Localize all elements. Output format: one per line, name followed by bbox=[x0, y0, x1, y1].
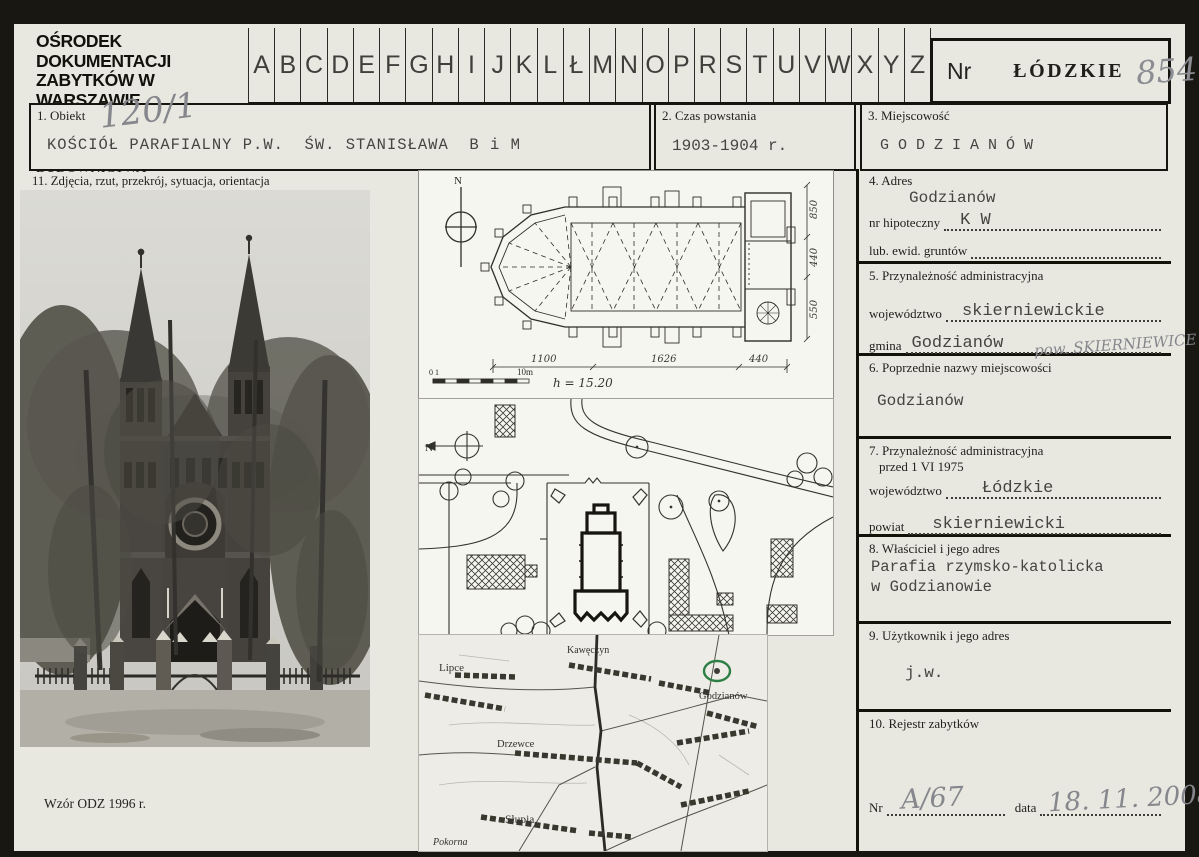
powiat-label: powiat bbox=[869, 519, 904, 535]
plot-corner-markers bbox=[550, 489, 647, 627]
field-former-names: 6. Poprzednie nazwy miejscowości Godzian… bbox=[859, 356, 1171, 439]
map-label-lipce: Lipce bbox=[439, 662, 464, 674]
gmina-label: gmina bbox=[869, 338, 902, 354]
alphabet-cell-n: N bbox=[616, 28, 642, 102]
gmina-value: Godzianów bbox=[912, 334, 1004, 353]
record-card: OŚRODEK DOKUMENTACJI ZABYTKÓW W WARSZAWI… bbox=[14, 24, 1185, 851]
alphabet-cell-m: M bbox=[590, 28, 616, 102]
field-owner: 8. Właściciel i jego adres Parafia rzyms… bbox=[859, 537, 1171, 624]
alphabet-cell-z: Z bbox=[905, 28, 931, 102]
dim-440r: 440 bbox=[809, 247, 820, 268]
tower-block bbox=[745, 193, 795, 341]
site-plan-art: N bbox=[419, 399, 833, 635]
dim-850: 850 bbox=[809, 199, 820, 219]
church-footprint bbox=[575, 505, 627, 620]
land-register-label: lub. ewid. gruntów bbox=[869, 243, 967, 259]
alphabet-cell-o: O bbox=[643, 28, 669, 102]
dim-1100: 1100 bbox=[531, 354, 557, 365]
alphabet-cell-y: Y bbox=[879, 28, 905, 102]
dim-440b: 440 bbox=[748, 354, 769, 365]
pre1975-voivodeship-label: województwo bbox=[869, 483, 942, 499]
alphabet-cell-c: C bbox=[301, 28, 327, 102]
alphabet-cell-j: J bbox=[485, 28, 511, 102]
alphabet-cell-w: W bbox=[826, 28, 852, 102]
field-date: 2. Czas powstania 1903-1904 r. bbox=[654, 103, 856, 171]
register-date-value: 18. 11. 2008 bbox=[1048, 780, 1199, 819]
site-plan-north-label: N bbox=[425, 442, 433, 454]
alphabet-cell-u: U bbox=[774, 28, 800, 102]
map-label-slupia: Słupia bbox=[505, 814, 534, 826]
field-address-value: Godzianów bbox=[909, 189, 1161, 207]
alphabet-cell-t: T bbox=[747, 28, 773, 102]
alphabet-cell-h: H bbox=[433, 28, 459, 102]
map-label-pokorna: Pokorna bbox=[432, 837, 467, 848]
form-version-note: Wzór ODZ 1996 r. bbox=[44, 796, 146, 812]
voivodeship-label: województwo bbox=[869, 306, 942, 322]
field-locality-label: 3. Miejscowość bbox=[868, 108, 950, 124]
church-photo-art bbox=[20, 190, 370, 747]
height-note: h = 15.20 bbox=[553, 376, 613, 390]
field-date-value: 1903-1904 r. bbox=[672, 137, 787, 155]
alphabet-cell-b: B bbox=[275, 28, 301, 102]
field-locality-value: G O D Z I A N Ó W bbox=[880, 137, 1033, 154]
mortgage-number-value: K W bbox=[960, 211, 991, 230]
scale-zero-label: 0 1 bbox=[429, 368, 439, 377]
alphabet-cell-f: F bbox=[380, 28, 406, 102]
field-user-label: 9. Użytkownik i jego adres bbox=[869, 628, 1161, 644]
card-number-handwritten: 854 bbox=[1135, 50, 1199, 92]
field-owner-value2: w Godzianowie bbox=[871, 578, 1161, 596]
floor-plan-art: N 1100 1626 440 850 440 550 0 1 10m h = … bbox=[419, 171, 833, 399]
field-former-names-label: 6. Poprzednie nazwy miejscowości bbox=[869, 360, 1161, 376]
field-admin-pre1975-label1: 7. Przynależność administracyjna bbox=[869, 443, 1161, 459]
buttresses bbox=[481, 187, 741, 347]
alphabet-cell-x: X bbox=[852, 28, 878, 102]
site-plan: N bbox=[418, 398, 834, 636]
dim-550: 550 bbox=[809, 299, 820, 319]
voivodeship-value: skierniewickie bbox=[962, 302, 1105, 321]
field-object: 1. Obiekt 120/1 KOŚCIÓŁ PARAFIALNY P.W. … bbox=[29, 103, 651, 171]
field-admin-pre1975: 7. Przynależność administracyjna przed 1… bbox=[859, 439, 1171, 537]
alphabet-cell-r: R bbox=[695, 28, 721, 102]
register-date-label: data bbox=[1015, 800, 1037, 816]
org-name-line1: OŚRODEK DOKUMENTACJI bbox=[36, 32, 248, 71]
register-nr-label: Nr bbox=[869, 800, 883, 816]
alphabet-cell-d: D bbox=[328, 28, 354, 102]
alphabet-cell-v: V bbox=[800, 28, 826, 102]
alphabet-strip: ABCDEFGHIJKLŁMNOPRSTUVWXYZ bbox=[248, 28, 931, 105]
field-object-value: KOŚCIÓŁ PARAFIALNY P.W. ŚW. STANISŁAWA B… bbox=[47, 136, 521, 154]
field-register: 10. Rejestr zabytków Nr A/67 data 18. 11… bbox=[859, 712, 1171, 851]
right-column: 4. Adres Godzianów nr hipoteczny K W lub… bbox=[856, 169, 1171, 851]
church-photo bbox=[20, 190, 370, 747]
field-admin: 5. Przynależność administracyjna wojewód… bbox=[859, 264, 1171, 356]
alphabet-cell-l: L bbox=[538, 28, 564, 102]
alphabet-cell-i: I bbox=[459, 28, 485, 102]
floor-plan: N 1100 1626 440 850 440 550 0 1 10m h = … bbox=[418, 170, 834, 400]
map-label-drzewce: Drzewce bbox=[497, 739, 535, 750]
field-images-label: 11. Zdjęcia, rzut, przekrój, sytuacja, o… bbox=[32, 174, 270, 189]
mortgage-number-label: nr hipoteczny bbox=[869, 215, 940, 231]
alphabet-cell-e: E bbox=[354, 28, 380, 102]
vault-lines bbox=[499, 215, 741, 319]
scale-max-label: 10m bbox=[517, 367, 533, 377]
field-address: 4. Adres Godzianów nr hipoteczny K W lub… bbox=[859, 169, 1171, 264]
powiat-value: skierniewicki bbox=[932, 515, 1065, 534]
site-buildings bbox=[467, 405, 797, 631]
field-address-label: 4. Adres bbox=[869, 173, 1161, 189]
card-number-box: Nr ŁÓDZKIE 854 bbox=[930, 38, 1171, 104]
location-map-art: Lipce Kawęczyn Godzianów Drzewce Słupia … bbox=[419, 635, 767, 851]
alphabet-cell-s: S bbox=[721, 28, 747, 102]
dim-1626: 1626 bbox=[651, 354, 677, 365]
alphabet-cell-p: P bbox=[669, 28, 695, 102]
field-admin-label: 5. Przynależność administracyjna bbox=[869, 268, 1161, 284]
road-upper bbox=[571, 399, 833, 497]
pre1975-voivodeship-value: Łódzkie bbox=[982, 479, 1053, 498]
floor-plan-north-label: N bbox=[454, 175, 462, 187]
location-map: Lipce Kawęczyn Godzianów Drzewce Słupia … bbox=[418, 634, 768, 852]
field-former-names-value: Godzianów bbox=[877, 392, 1161, 410]
register-nr-value: A/67 bbox=[900, 781, 964, 815]
field-object-label: 1. Obiekt bbox=[37, 108, 85, 124]
field-owner-value1: Parafia rzymsko-katolicka bbox=[871, 558, 1161, 576]
alphabet-cell-g: G bbox=[406, 28, 432, 102]
alphabet-cell-k: K bbox=[511, 28, 537, 102]
right-finial bbox=[246, 235, 252, 241]
alphabet-cell-ł: Ł bbox=[564, 28, 590, 102]
field-admin-pre1975-label2: przed 1 VI 1975 bbox=[879, 459, 1161, 475]
alphabet-cell-a: A bbox=[249, 28, 275, 102]
site-north-arrow-icon bbox=[426, 431, 483, 461]
field-register-label: 10. Rejestr zabytków bbox=[869, 716, 1161, 732]
nr-label: Nr bbox=[947, 58, 971, 85]
scale-bar bbox=[433, 379, 529, 383]
field-date-label: 2. Czas powstania bbox=[662, 108, 756, 124]
map-label-godzianow: Godzianów bbox=[699, 691, 748, 702]
field-locality: 3. Miejscowość G O D Z I A N Ó W bbox=[860, 103, 1168, 171]
map-label-kaweczyn: Kawęczyn bbox=[567, 645, 609, 656]
north-arrow-icon bbox=[445, 187, 477, 267]
field-user-value: j.w. bbox=[905, 664, 1161, 682]
field-user: 9. Użytkownik i jego adres j.w. bbox=[859, 624, 1171, 712]
voivodeship-stamp: ŁÓDZKIE bbox=[1013, 60, 1124, 83]
field-owner-label: 8. Właściciel i jego adres bbox=[869, 541, 1161, 557]
